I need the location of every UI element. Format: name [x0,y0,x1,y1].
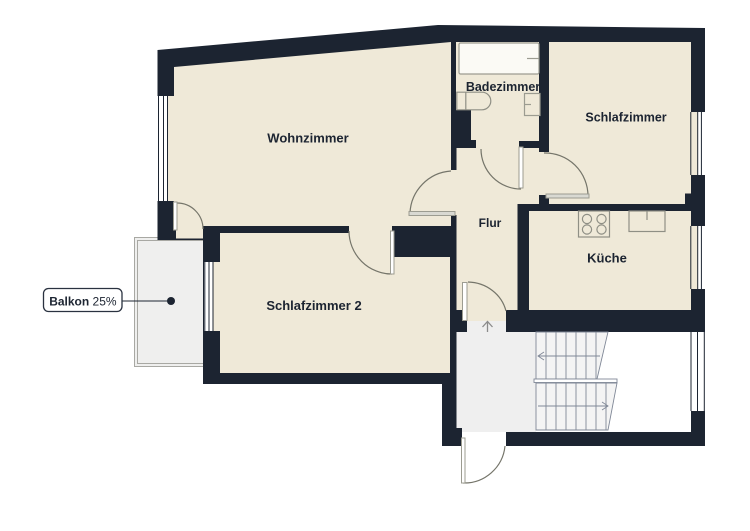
svg-text:Schlafzimmer: Schlafzimmer [585,111,666,125]
svg-text:Wohnzimmer: Wohnzimmer [267,131,348,146]
svg-text:Flur: Flur [479,216,502,230]
svg-text:Schlafzimmer 2: Schlafzimmer 2 [266,298,361,313]
svg-text:Badezimmer: Badezimmer [466,80,540,94]
svg-text:Küche: Küche [587,250,627,265]
svg-text:Balkon 25%: Balkon 25% [49,294,117,308]
